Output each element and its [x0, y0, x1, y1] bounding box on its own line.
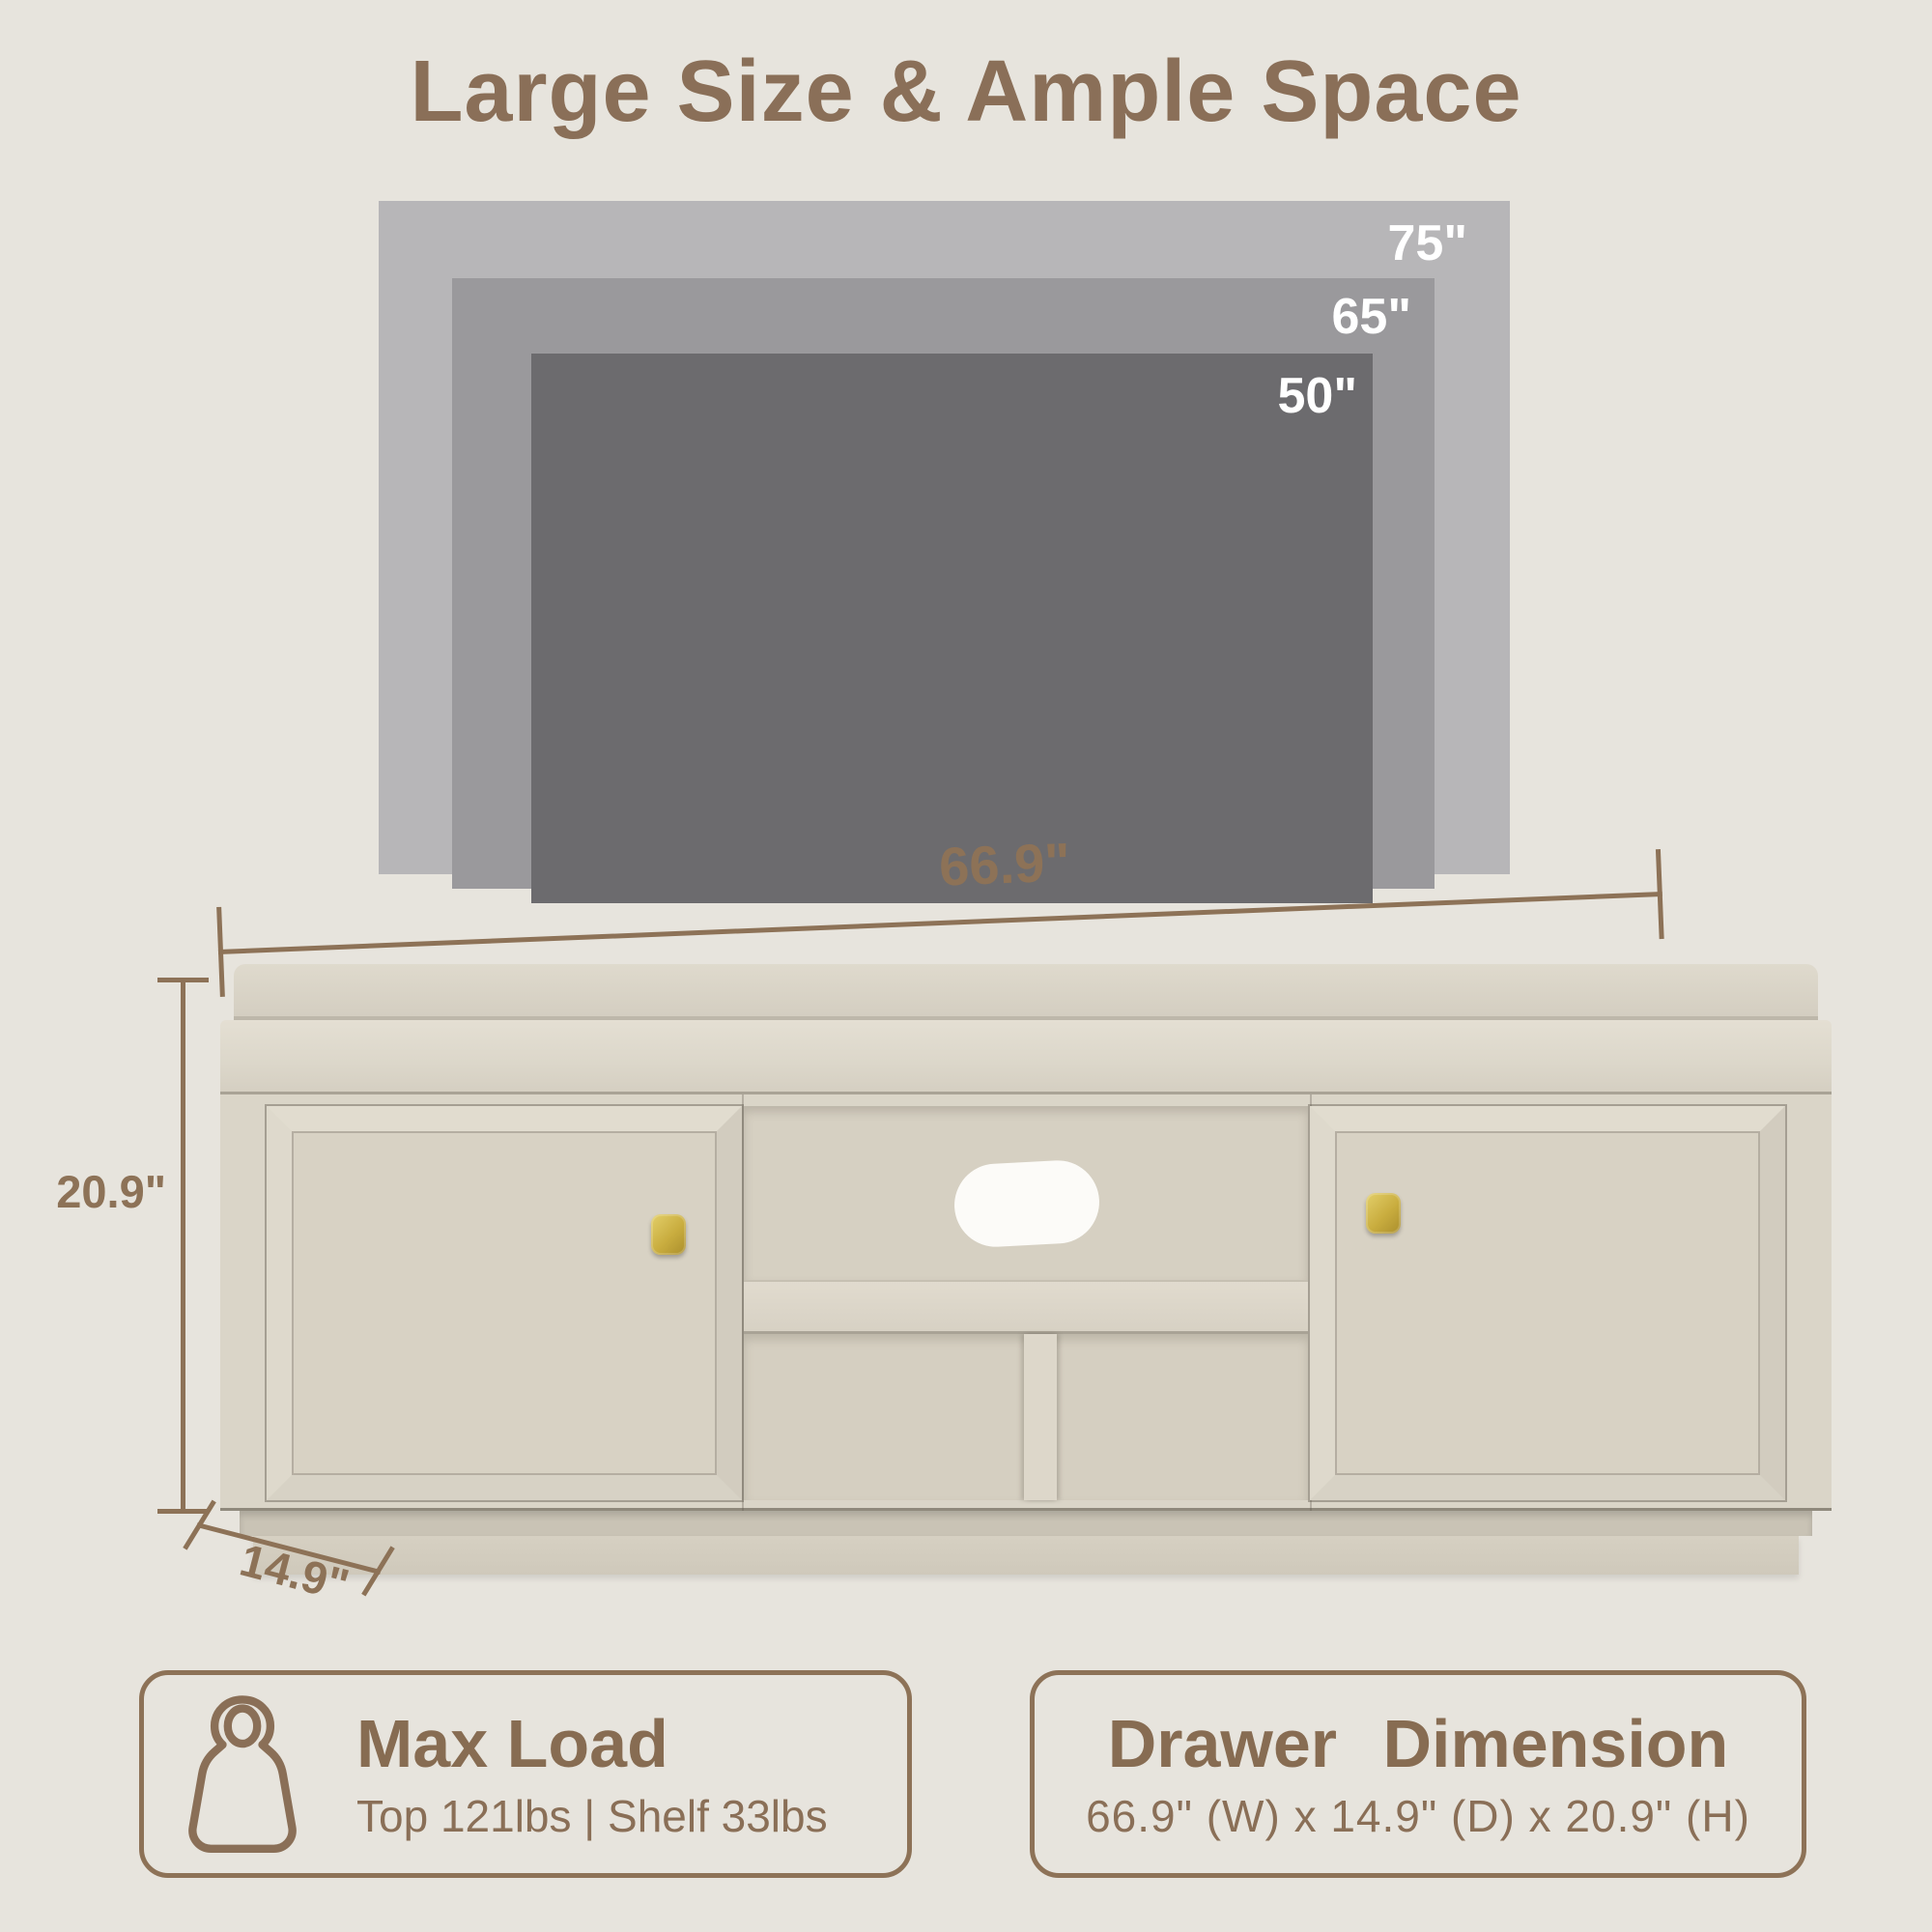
stand-cubby-divider	[1024, 1334, 1057, 1500]
stand-open-shelf-upper	[744, 1106, 1308, 1280]
stand-top-rail	[234, 964, 1818, 1020]
drawer-dimension-detail: 66.9" (W) x 14.9" (D) x 20.9" (H)	[1086, 1792, 1750, 1840]
tv-size-label-65: 65"	[1332, 292, 1412, 342]
right-door-knob	[1366, 1193, 1401, 1234]
max-load-detail: Top 121lbs | Shelf 33lbs	[356, 1792, 828, 1840]
weight-handle-hole	[228, 1708, 257, 1743]
cable-hole	[952, 1158, 1101, 1249]
stand-right-door	[1310, 1106, 1785, 1500]
height-dimension-label: 20.9"	[19, 1165, 166, 1218]
stand-middle-shelf	[744, 1280, 1308, 1334]
stand-body	[220, 1094, 1832, 1511]
tv-size-rect-50: 50"	[531, 354, 1373, 903]
width-dimension-label: 66.9"	[859, 827, 1151, 901]
weight-body-outline	[192, 1699, 292, 1848]
info-card-drawer-dimension: Drawer Dimension 66.9" (W) x 14.9" (D) x…	[1030, 1670, 1806, 1878]
tv-size-label-50: 50"	[1278, 371, 1358, 421]
max-load-title: Max Load	[356, 1709, 828, 1778]
stand-plinth-step	[240, 1511, 1812, 1536]
stand-left-door	[267, 1106, 742, 1500]
stand-top-surface	[220, 1020, 1832, 1094]
page-title: Large Size & Ample Space	[0, 46, 1932, 137]
drawer-dimension-title: Drawer Dimension	[1108, 1709, 1729, 1778]
weight-icon	[169, 1691, 316, 1858]
stand-lower-cubbies	[744, 1334, 1308, 1500]
left-door-knob	[651, 1214, 686, 1255]
max-load-text: Max Load Top 121lbs | Shelf 33lbs	[356, 1709, 828, 1840]
height-dimension-line	[181, 978, 185, 1514]
stand-plinth-base	[253, 1536, 1799, 1575]
infographic-canvas: Large Size & Ample Space 75" 65" 50"	[0, 0, 1932, 1932]
info-card-max-load: Max Load Top 121lbs | Shelf 33lbs	[139, 1670, 912, 1878]
tv-stand-illustration	[220, 964, 1832, 1575]
tv-size-label-75: 75"	[1388, 218, 1468, 269]
